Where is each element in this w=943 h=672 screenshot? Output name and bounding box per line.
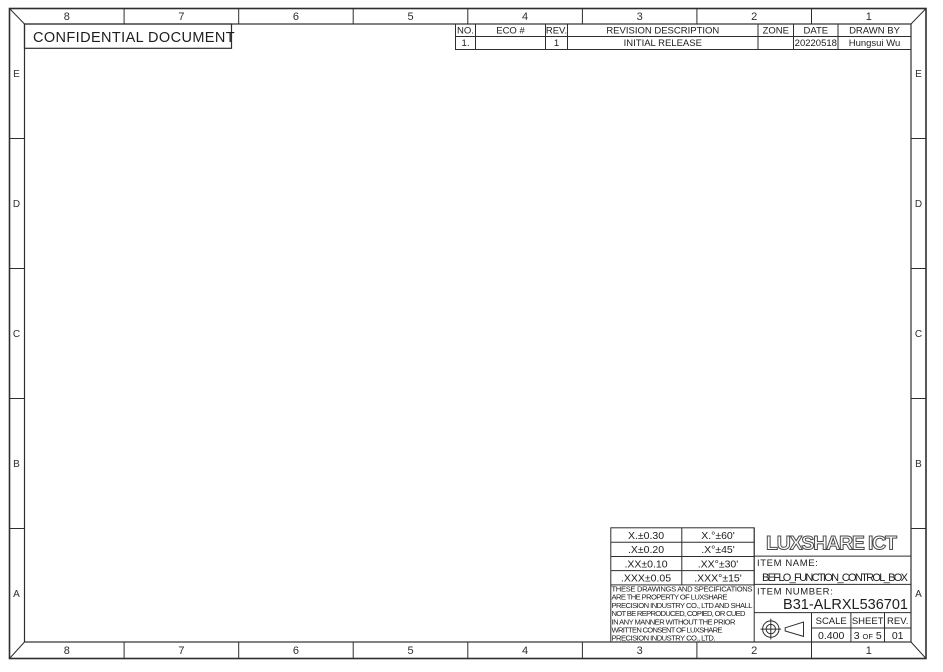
svg-text:E: E [915, 69, 922, 80]
svg-text:6: 6 [293, 11, 299, 23]
svg-text:E: E [13, 69, 20, 80]
svg-text:5: 5 [407, 11, 413, 23]
svg-text:7: 7 [178, 645, 184, 657]
svg-text:1: 1 [554, 38, 559, 49]
svg-text:CONFIDENTIAL DOCUMENT: CONFIDENTIAL DOCUMENT [33, 30, 235, 46]
svg-text:B31-ALRXL536701: B31-ALRXL536701 [783, 597, 908, 613]
svg-text:Hungsui Wu: Hungsui Wu [849, 38, 901, 49]
svg-text:REVISION DESCRIPTION: REVISION DESCRIPTION [606, 26, 719, 37]
svg-text:NO.: NO. [457, 26, 474, 37]
svg-text:4: 4 [522, 11, 528, 23]
svg-text:B: B [13, 459, 20, 470]
svg-text:3: 3 [637, 11, 643, 23]
svg-text:X.°±60': X.°±60' [701, 530, 735, 542]
svg-text:01: 01 [892, 630, 904, 642]
svg-text:3: 3 [637, 645, 643, 657]
svg-text:D: D [915, 199, 922, 210]
svg-text:1.: 1. [462, 38, 470, 49]
svg-text:DATE: DATE [803, 26, 828, 37]
svg-text:2: 2 [751, 645, 757, 657]
svg-text:PRECISION INDUSTRY CO., LTD.: PRECISION INDUSTRY CO., LTD. [612, 634, 716, 643]
svg-text:.XX°±30': .XX°±30' [698, 558, 739, 570]
svg-text:3 OF 5: 3 OF 5 [854, 630, 882, 642]
svg-text:ZONE: ZONE [763, 26, 789, 37]
svg-text:SCALE: SCALE [816, 616, 847, 627]
svg-text:2: 2 [751, 11, 757, 23]
svg-text:INITIAL RELEASE: INITIAL RELEASE [624, 38, 702, 49]
svg-text:D: D [13, 199, 20, 210]
svg-text:8: 8 [64, 11, 70, 23]
svg-text:0.400: 0.400 [818, 630, 844, 642]
svg-text:SHEET: SHEET [852, 616, 884, 627]
svg-text:ITEM NUMBER:: ITEM NUMBER: [757, 587, 833, 598]
svg-text:8: 8 [64, 645, 70, 657]
svg-text:C: C [915, 329, 922, 340]
svg-text:6: 6 [293, 645, 299, 657]
svg-text:REV.: REV. [887, 616, 908, 627]
svg-text:C: C [13, 329, 20, 340]
svg-text:ITEM NAME:: ITEM NAME: [757, 558, 818, 569]
svg-text:4: 4 [522, 645, 528, 657]
svg-text:.XXX±0.05: .XXX±0.05 [621, 573, 671, 585]
svg-text:ECO #: ECO # [496, 26, 525, 37]
svg-text:BEFLO_FUNCTION_CONTROL_BOX: BEFLO_FUNCTION_CONTROL_BOX [762, 572, 909, 584]
svg-text:.XX±0.10: .XX±0.10 [624, 558, 667, 570]
svg-text:.X°±45': .X°±45' [701, 544, 735, 556]
svg-text:20220518: 20220518 [795, 38, 837, 49]
svg-text:DRAWN BY: DRAWN BY [849, 26, 901, 37]
svg-text:X.±0.30: X.±0.30 [628, 530, 664, 542]
svg-text:1: 1 [866, 645, 872, 657]
svg-text:5: 5 [407, 645, 413, 657]
svg-text:A: A [13, 589, 20, 600]
svg-text:REV.: REV. [546, 26, 567, 37]
svg-text:7: 7 [178, 11, 184, 23]
svg-text:.X±0.20: .X±0.20 [628, 544, 664, 556]
svg-text:A: A [915, 589, 922, 600]
svg-text:.XXX°±15': .XXX°±15' [694, 573, 742, 585]
svg-text:1: 1 [866, 11, 872, 23]
svg-text:B: B [915, 459, 922, 470]
svg-text:LUXSHARE ICT: LUXSHARE ICT [766, 533, 898, 555]
